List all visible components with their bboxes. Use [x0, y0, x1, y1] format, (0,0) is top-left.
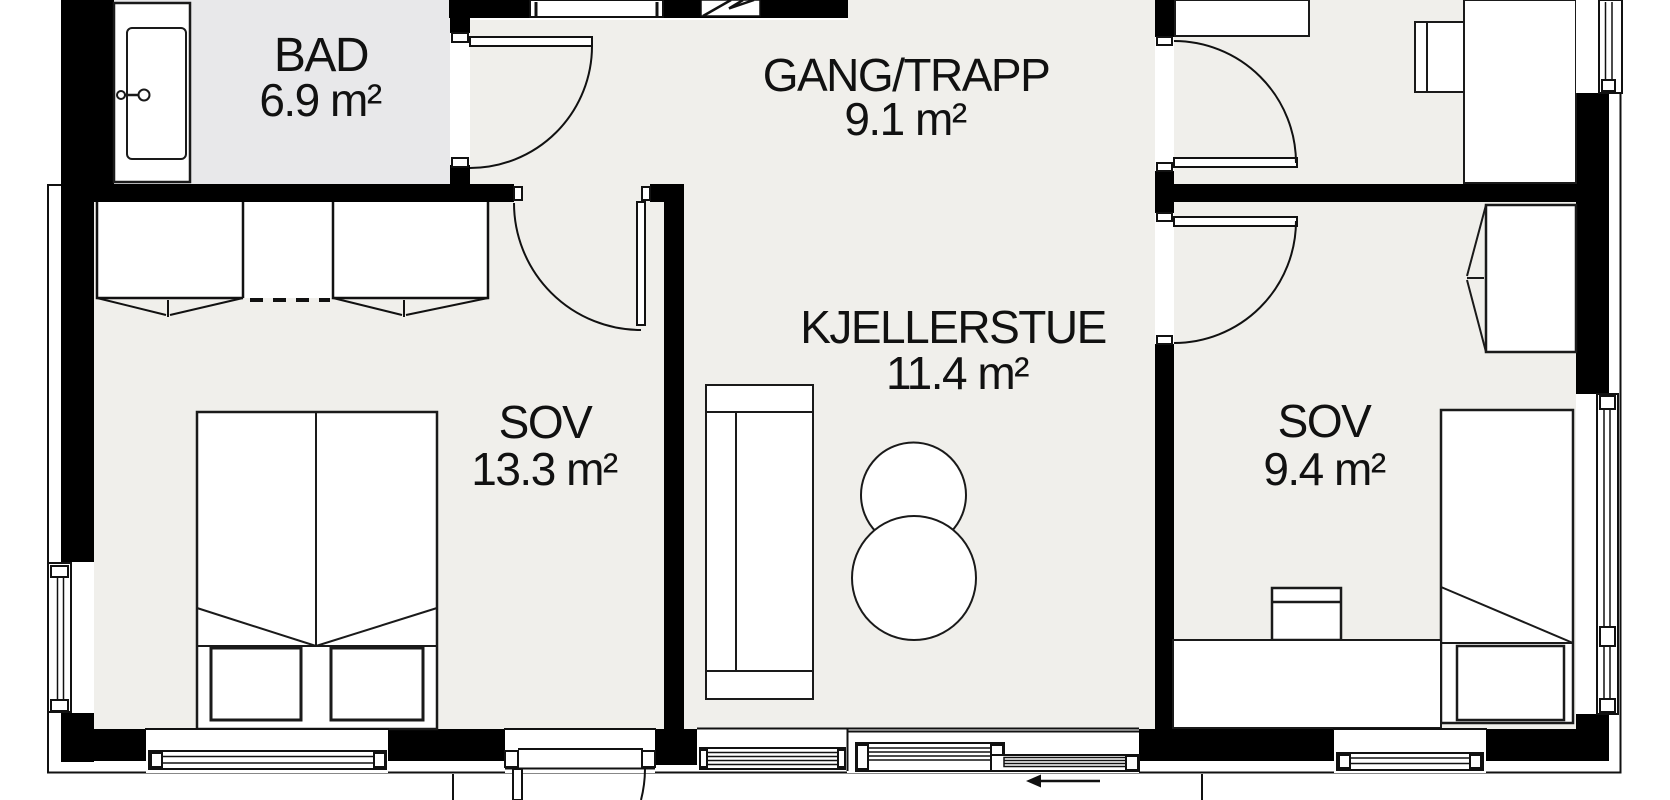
- svg-text:13.3 m²: 13.3 m²: [471, 443, 618, 495]
- svg-text:6.9 m²: 6.9 m²: [259, 74, 382, 126]
- svg-text:KJELLERSTUE: KJELLERSTUE: [800, 301, 1106, 353]
- svg-text:9.1 m²: 9.1 m²: [844, 93, 967, 145]
- svg-text:9.4 m²: 9.4 m²: [1263, 443, 1386, 495]
- svg-text:11.4 m²: 11.4 m²: [886, 347, 1029, 399]
- svg-text:SOV: SOV: [1278, 395, 1372, 447]
- svg-text:SOV: SOV: [499, 396, 593, 448]
